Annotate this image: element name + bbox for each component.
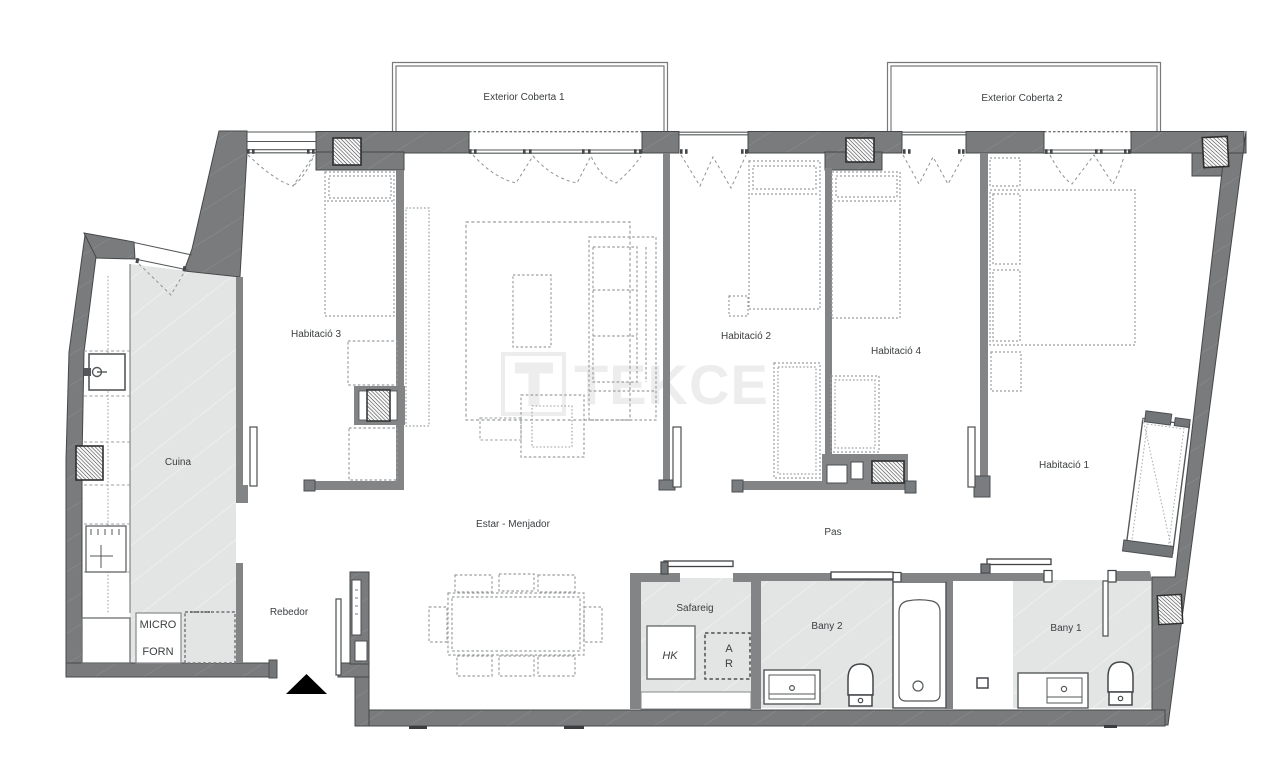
svg-text:Cuina: Cuina: [165, 457, 192, 468]
svg-text:A: A: [725, 643, 733, 655]
svg-text:Habitació 4: Habitació 4: [871, 346, 921, 357]
svg-text:Pas: Pas: [824, 527, 841, 538]
svg-text:FORN: FORN: [142, 646, 173, 658]
svg-text:Habitació 3: Habitació 3: [291, 329, 341, 340]
svg-text:Habitació 2: Habitació 2: [721, 331, 771, 342]
svg-text:Exterior Coberta 2: Exterior Coberta 2: [981, 93, 1063, 104]
svg-text:TEKCE: TEKCE: [574, 353, 769, 416]
svg-text:HK: HK: [662, 650, 678, 662]
svg-text:Exterior Coberta 1: Exterior Coberta 1: [483, 92, 565, 103]
svg-text:MICRO: MICRO: [140, 619, 177, 631]
svg-text:R: R: [725, 658, 733, 670]
svg-text:Rebedor: Rebedor: [270, 607, 309, 618]
svg-text:Estar - Menjador: Estar - Menjador: [476, 519, 551, 530]
svg-text:Safareig: Safareig: [676, 603, 713, 614]
svg-text:Bany 2: Bany 2: [811, 621, 843, 632]
svg-text:Habitació 1: Habitació 1: [1039, 460, 1089, 471]
svg-text:Bany 1: Bany 1: [1050, 623, 1082, 634]
